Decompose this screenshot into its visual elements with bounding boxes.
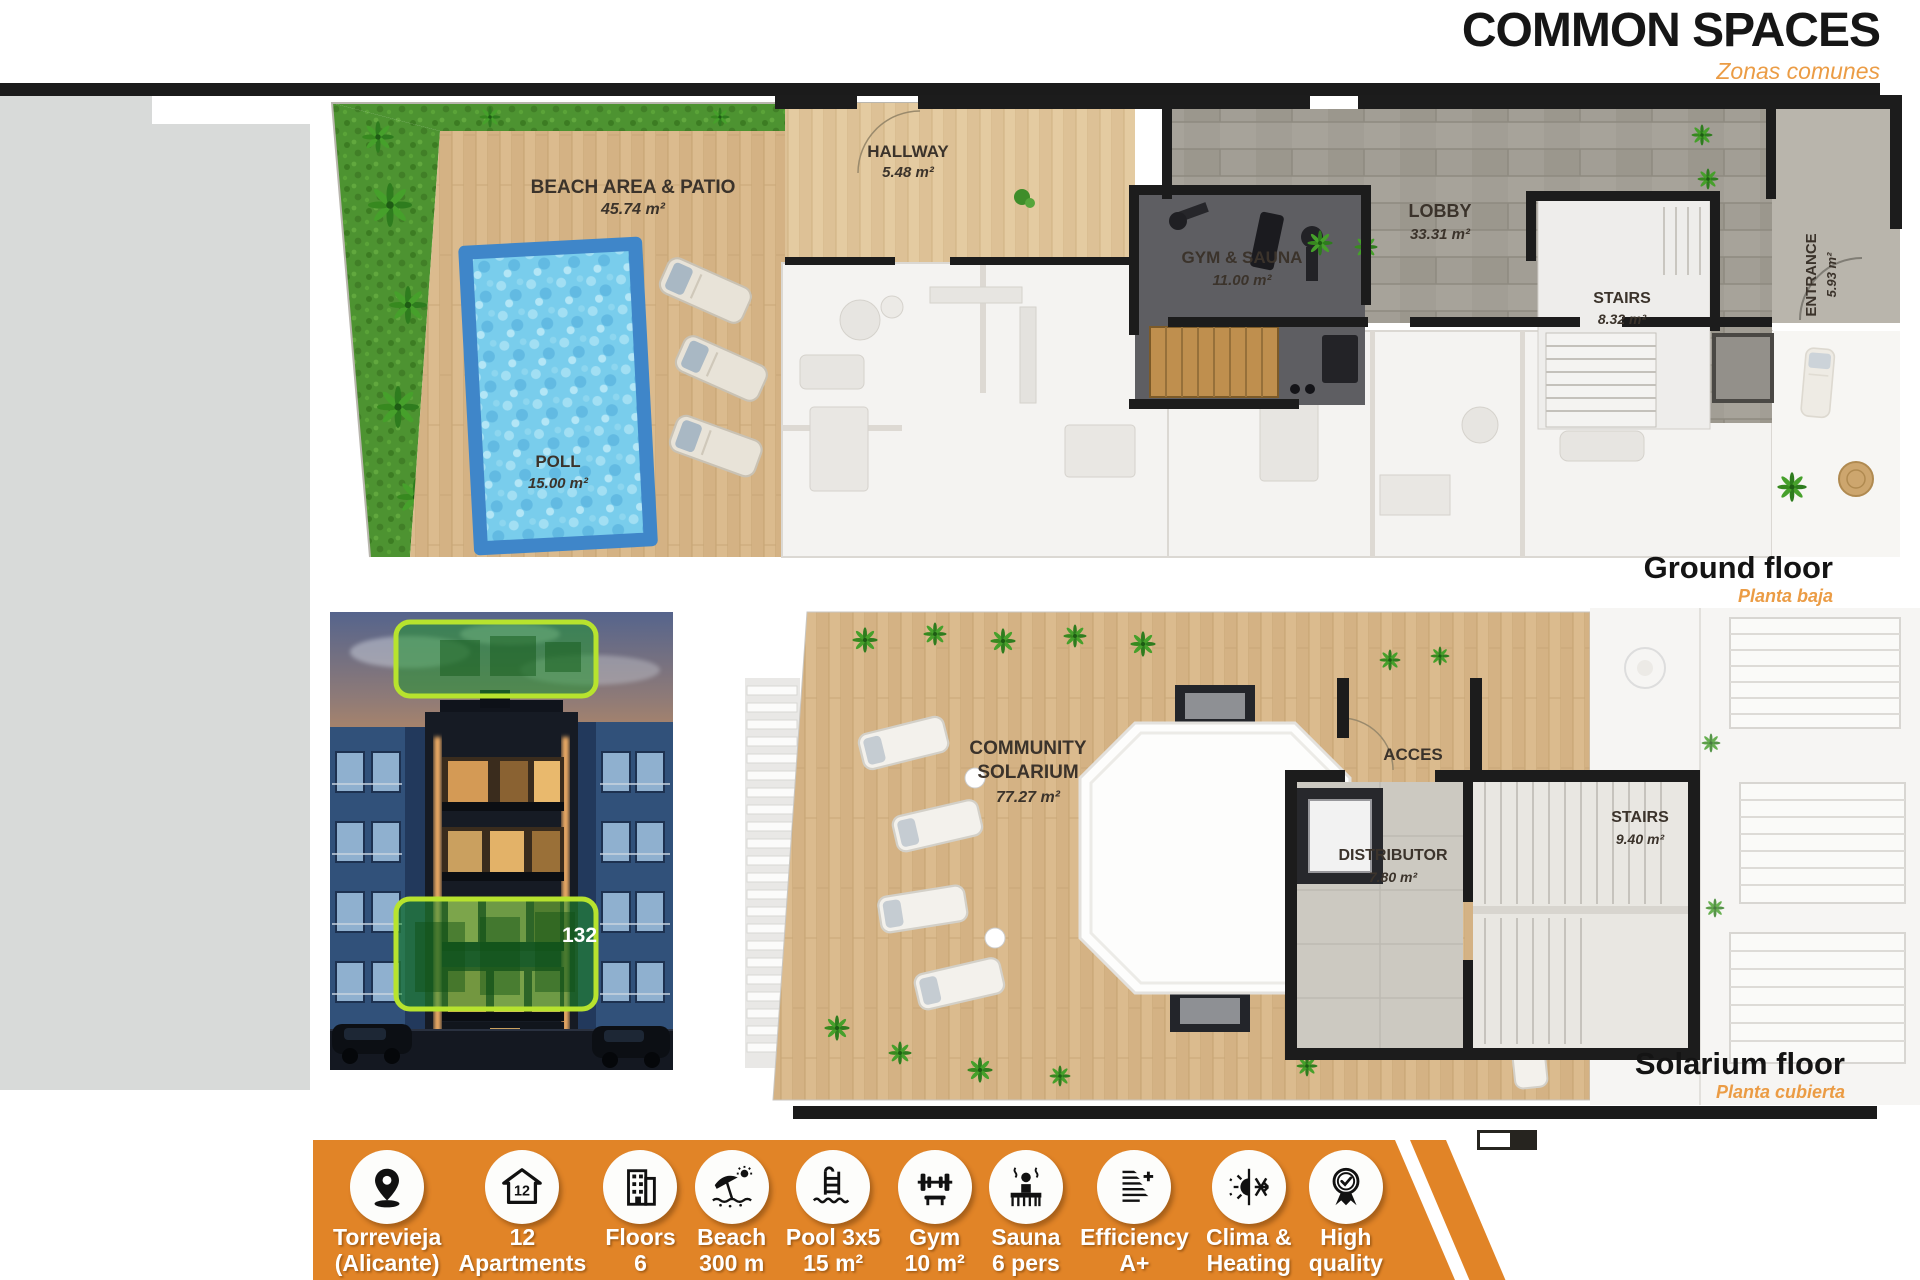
sidebar-gray-panel xyxy=(0,96,152,1090)
ground-stairs-label: STAIRS xyxy=(1593,290,1651,307)
sauna-icon xyxy=(989,1150,1063,1224)
bush-icon xyxy=(711,108,730,127)
page-subtitle: Zonas comunes xyxy=(1462,58,1880,85)
pool-value: 15.00 m² xyxy=(528,475,589,492)
feature-label-2: (Alicante) xyxy=(335,1250,440,1276)
feature-pool: Pool 3x5 15 m² xyxy=(786,1140,881,1276)
lobby-value: 33.31 m² xyxy=(1410,226,1471,243)
gym-label: GYM & SAUNA xyxy=(1182,248,1303,267)
efficiency-icon xyxy=(1097,1150,1171,1224)
corner-mark xyxy=(1477,1130,1537,1150)
street xyxy=(330,1024,673,1070)
feature-label-2: Heating xyxy=(1207,1250,1291,1276)
community-solarium-value: 77.27 m² xyxy=(996,789,1061,806)
hallway-floor xyxy=(785,103,1135,263)
feature-label-1: Floors xyxy=(605,1224,675,1250)
community-solarium-label-1: COMMUNITY xyxy=(969,738,1086,759)
feature-label-2: 6 pers xyxy=(992,1250,1060,1276)
palm-tree-icon xyxy=(389,286,427,324)
solarium-stairs-label: STAIRS xyxy=(1611,809,1669,826)
feature-label-2: Apartments xyxy=(458,1250,586,1276)
solarium-floor-caption-es: Planta cubierta xyxy=(1635,1082,1845,1103)
ground-floor-caption-en: Ground floor xyxy=(1644,552,1833,585)
solarium-highlight-box xyxy=(396,622,596,696)
entrance-label: ENTRANCE xyxy=(1803,233,1820,316)
distributor-value: 7.80 m² xyxy=(1369,869,1418,885)
solarium-floor-caption: Solarium floor Planta cubierta xyxy=(1635,1048,1845,1103)
ground-floor-caption-es: Planta baja xyxy=(1644,586,1833,607)
acces-label: ACCES xyxy=(1383,745,1443,764)
ground-highlight-box: 132 xyxy=(396,899,597,1009)
pool xyxy=(458,236,658,555)
gym-value: 11.00 m² xyxy=(1213,272,1273,289)
solarium-floor-caption-en: Solarium floor xyxy=(1635,1048,1845,1081)
lobby-label: LOBBY xyxy=(1409,201,1472,221)
feature-quality: High quality xyxy=(1309,1140,1383,1276)
feature-label-2: 15 m² xyxy=(803,1250,863,1276)
palm-tree-icon xyxy=(377,386,419,428)
solarium-divider-bar xyxy=(793,1106,1877,1119)
entrance-value: 5.93 m² xyxy=(1824,252,1839,297)
feature-label-1: Sauna xyxy=(991,1224,1060,1250)
gym-sauna-room xyxy=(1135,191,1365,405)
feature-clima: Clima & Heating xyxy=(1206,1140,1292,1276)
pool-icon xyxy=(796,1150,870,1224)
location-pin-icon xyxy=(350,1150,424,1224)
beach-area-value: 45.74 m² xyxy=(600,201,666,218)
feature-sauna: Sauna 6 pers xyxy=(989,1140,1063,1276)
page-title: COMMON SPACES xyxy=(1462,6,1880,56)
solarium-floor-plan: COMMUNITY SOLARIUM 77.27 m² ACCES DISTRI… xyxy=(745,608,1920,1105)
feature-label-2: 10 m² xyxy=(905,1250,965,1276)
svg-text:12: 12 xyxy=(514,1184,530,1200)
quality-icon xyxy=(1309,1150,1383,1224)
community-solarium-label-2: SOLARIUM xyxy=(977,762,1078,783)
apartments-icon: 12 xyxy=(485,1150,559,1224)
right-neighbor-building xyxy=(578,722,673,1070)
solarium-stairs-value: 9.40 m² xyxy=(1616,831,1665,847)
highlight-number-label: 132 xyxy=(562,924,597,947)
distributor-label: DISTRIBUTOR xyxy=(1338,847,1447,864)
feature-label-2: 300 m xyxy=(699,1250,764,1276)
features-bar: Torrevieja (Alicante) 12 12 Apartments xyxy=(313,1140,1473,1280)
sidebar-gray-panel-step xyxy=(152,124,310,1090)
feature-label-1: Gym xyxy=(909,1224,960,1250)
feature-location: Torrevieja (Alicante) xyxy=(333,1140,441,1276)
beach-icon xyxy=(695,1150,769,1224)
feature-label-1: Beach xyxy=(697,1224,766,1250)
clima-icon xyxy=(1212,1150,1286,1224)
hallway-value: 5.48 m² xyxy=(882,164,935,181)
feature-gym: Gym 10 m² xyxy=(898,1140,972,1276)
gym-icon xyxy=(898,1150,972,1224)
floors-icon xyxy=(603,1150,677,1224)
pool-label: POLL xyxy=(535,452,580,471)
feature-beach: Beach 300 m xyxy=(695,1140,769,1276)
feature-floors: Floors 6 xyxy=(603,1140,677,1276)
feature-label-2: 6 xyxy=(634,1250,647,1276)
terrace-right xyxy=(1772,331,1900,557)
ground-floor-plan: BEACH AREA & PATIO 45.74 m² POLL 15.00 m… xyxy=(320,95,1920,565)
feature-label-2: quality xyxy=(1309,1250,1383,1276)
feature-label-1: Clima & xyxy=(1206,1224,1292,1250)
feature-label-1: Pool 3x5 xyxy=(786,1224,881,1250)
center-building xyxy=(425,690,578,1070)
elevator xyxy=(1714,335,1772,401)
ground-stairs-value: 8.32 m² xyxy=(1598,311,1647,327)
page-header: COMMON SPACES Zonas comunes xyxy=(1462,6,1880,85)
feature-label-1: High xyxy=(1320,1224,1371,1250)
feature-efficiency: Efficiency A+ xyxy=(1080,1140,1189,1276)
brochure-page: COMMON SPACES Zonas comunes xyxy=(0,0,1920,1280)
feature-label-2: A+ xyxy=(1119,1250,1149,1276)
building-photo: 132 xyxy=(330,612,673,1070)
palm-tree-icon xyxy=(368,183,412,227)
feature-apartments: 12 12 Apartments xyxy=(458,1140,586,1276)
beach-area-label: BEACH AREA & PATIO xyxy=(531,177,736,198)
feature-label-1: 12 xyxy=(510,1224,536,1250)
feature-label-1: Torrevieja xyxy=(333,1224,441,1250)
feature-label-1: Efficiency xyxy=(1080,1224,1189,1250)
palm-tree-icon xyxy=(362,121,394,153)
bush-icon xyxy=(480,107,501,128)
ground-floor-caption: Ground floor Planta baja xyxy=(1644,552,1833,607)
distributor-room xyxy=(1297,782,1463,1048)
hallway-label: HALLWAY xyxy=(867,142,949,161)
